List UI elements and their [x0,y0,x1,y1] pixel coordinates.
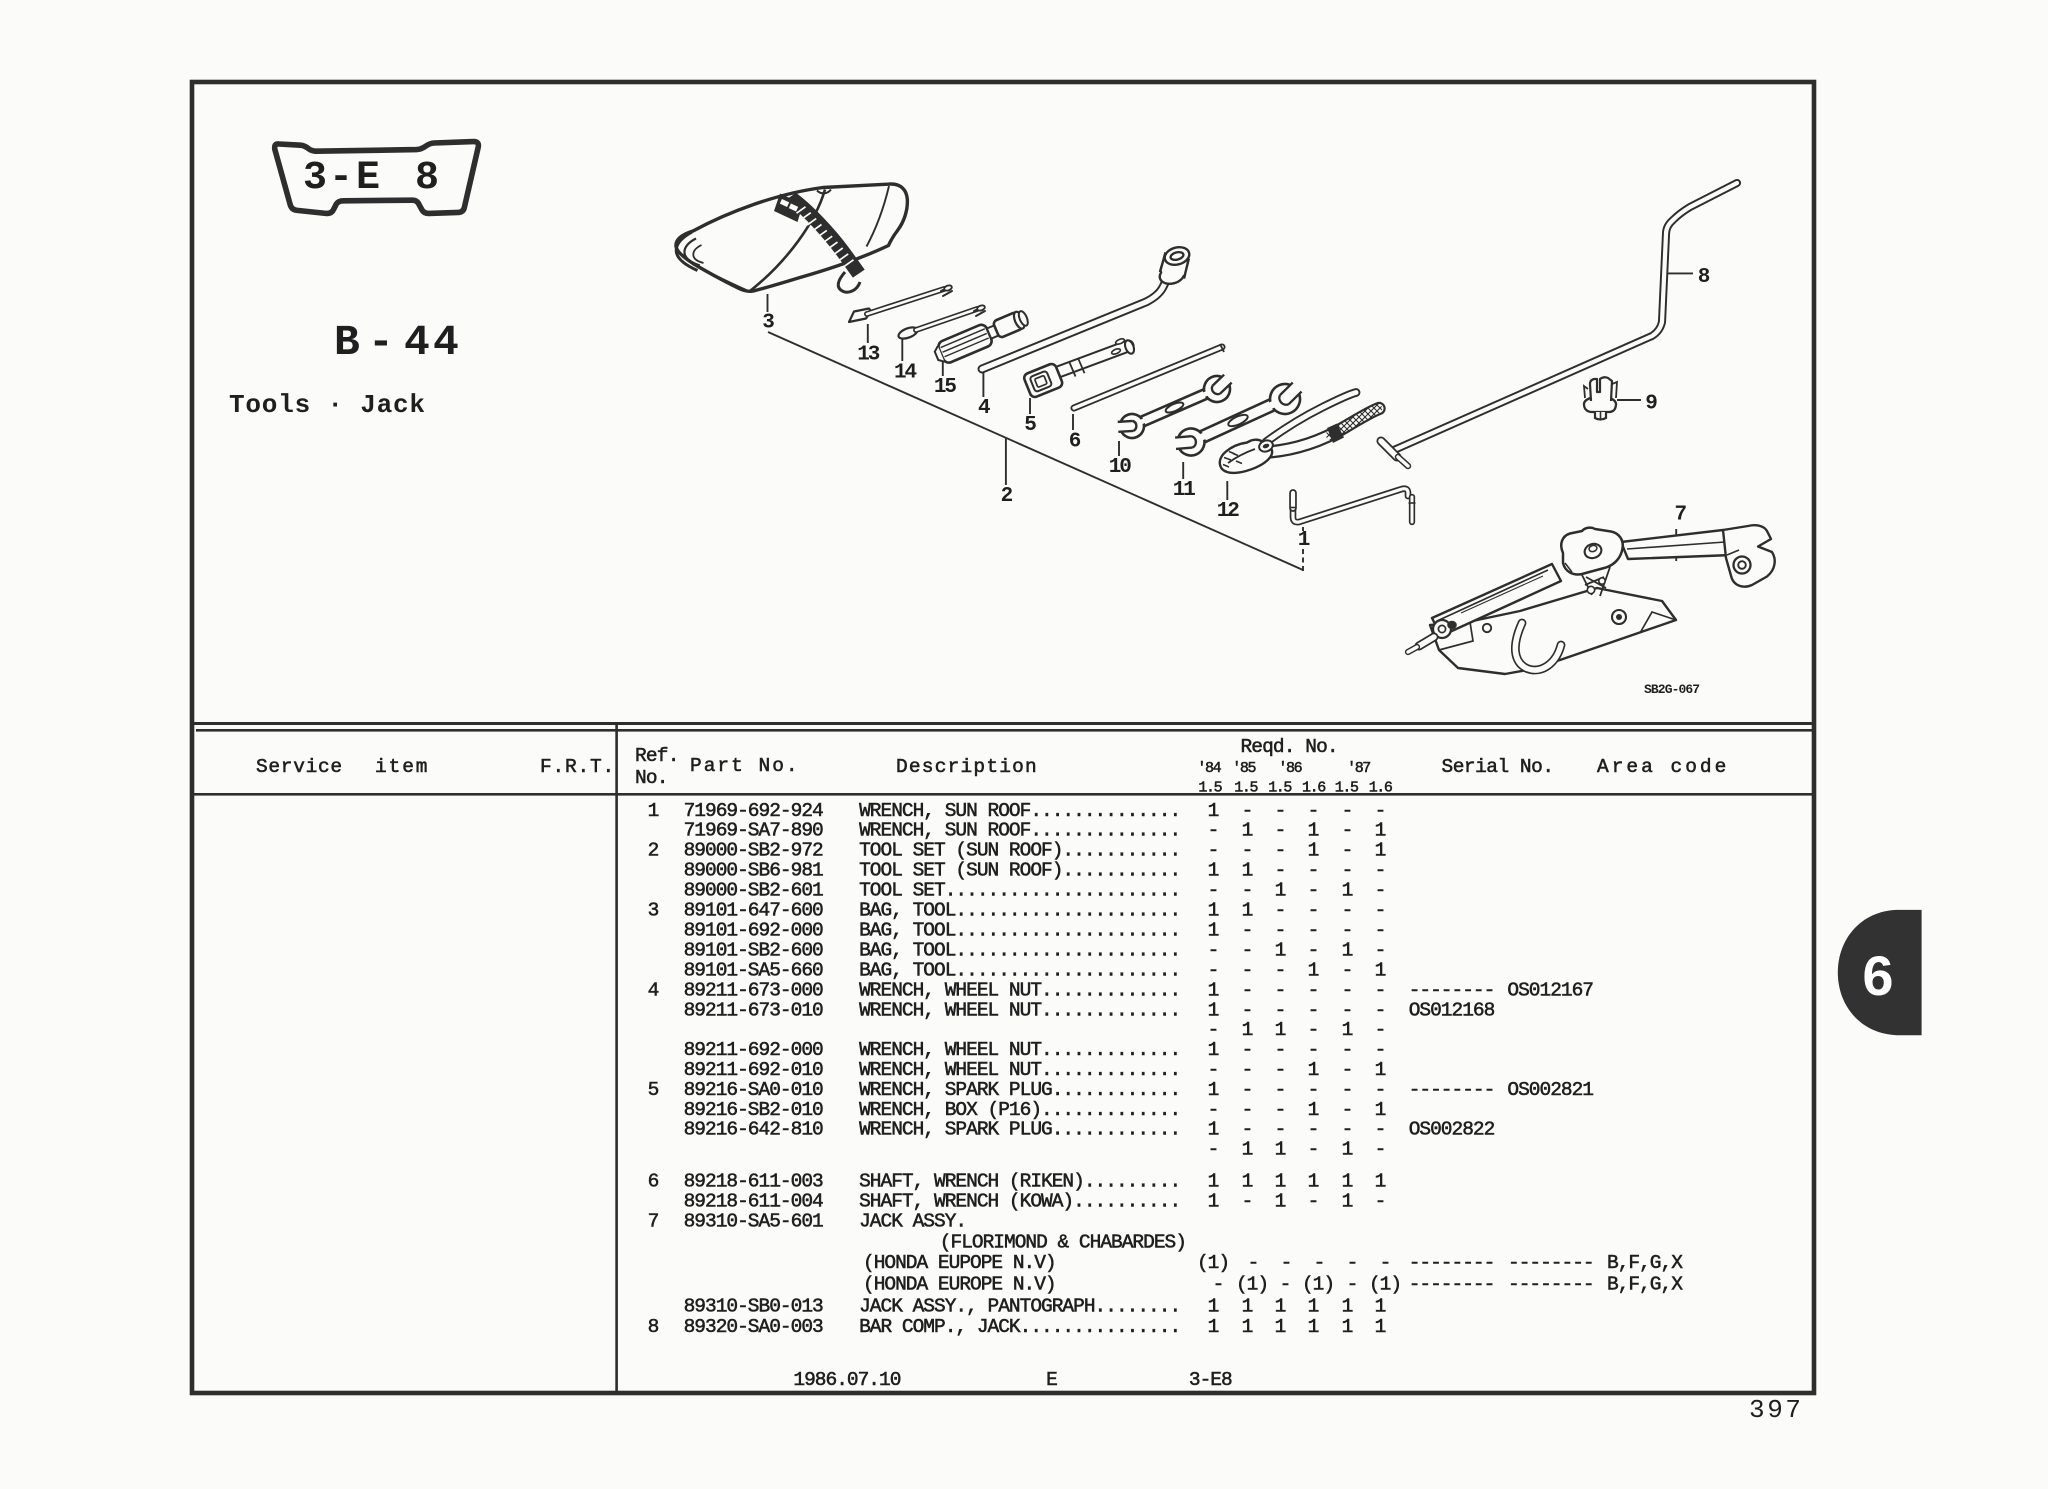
svg-text:(1): (1) [1236,1274,1268,1296]
svg-text:1: 1 [648,800,659,822]
svg-text:B,F,G,X: B,F,G,X [1607,1274,1683,1296]
svg-text:8: 8 [1698,266,1710,289]
svg-text:3: 3 [648,900,659,922]
svg-text:(HONDA EUROPE N.V): (HONDA EUROPE N.V) [863,1274,1056,1296]
svg-text:1.5: 1.5 [1198,780,1222,797]
svg-text:10: 10 [1109,456,1132,479]
svg-text:6: 6 [1862,944,1893,1007]
svg-text:Tools · Jack: Tools · Jack [229,390,426,420]
svg-text:E: E [1046,1369,1057,1391]
svg-text:--------: -------- [1508,1274,1594,1296]
svg-text:1-1-1-: 1-1-1- [1208,1191,1386,1213]
svg-text:OS002821: OS002821 [1507,1079,1593,1101]
svg-text:Service: Service [256,756,343,778]
svg-text:BAG, TOOL.....................: BAG, TOOL..................... [859,959,1180,981]
svg-text:1-----: 1----- [1208,800,1386,822]
svg-text:BAR COMP., JACK...............: BAR COMP., JACK............... [859,1316,1180,1338]
svg-text:8: 8 [648,1316,659,1338]
svg-text:---1-1: ---1-1 [1208,959,1386,981]
svg-text:1.6: 1.6 [1302,780,1326,797]
svg-text:-: - [1213,1274,1224,1296]
svg-text:'86: '86 [1278,760,1302,777]
svg-text:1-----: 1----- [1208,920,1386,942]
svg-text:89211-692-010: 89211-692-010 [684,1059,823,1081]
svg-text:397: 397 [1749,1395,1804,1425]
svg-text:Serial No.: Serial No. [1442,756,1554,778]
svg-text:--------: -------- [1409,979,1495,1001]
svg-text:B,F,G,X: B,F,G,X [1607,1252,1683,1274]
svg-text:7: 7 [1675,504,1687,527]
svg-text:Area code: Area code [1597,756,1729,778]
svg-text:WRENCH, SPARK PLUG............: WRENCH, SPARK PLUG............ [859,1119,1180,1141]
svg-text:6: 6 [648,1171,659,1193]
svg-text:89101-SA5-660: 89101-SA5-660 [684,959,823,981]
svg-text:89310-SA5-601: 89310-SA5-601 [684,1211,823,1233]
svg-text:item: item [375,756,429,778]
svg-text:OS002822: OS002822 [1409,1119,1495,1141]
svg-text:89320-SA0-003: 89320-SA0-003 [684,1316,823,1338]
svg-text:Part No.: Part No. [690,755,800,777]
svg-text:OS012168: OS012168 [1409,999,1495,1021]
svg-text:-----: ----- [1248,1252,1391,1274]
svg-text:89101-692-000: 89101-692-000 [684,920,823,942]
svg-text:-: - [1280,1274,1291,1296]
svg-text:SHAFT, WRENCH (RIKEN).........: SHAFT, WRENCH (RIKEN)......... [859,1171,1180,1193]
svg-text:WRENCH, SUN ROOF..............: WRENCH, SUN ROOF.............. [859,820,1180,842]
svg-text:BAG, TOOL.....................: BAG, TOOL..................... [859,939,1180,961]
svg-text:89000-SB2-601: 89000-SB2-601 [684,880,823,902]
svg-text:89310-SB0-013: 89310-SB0-013 [684,1295,823,1317]
svg-text:89211-673-010: 89211-673-010 [684,999,823,1021]
svg-text:---1-1: ---1-1 [1208,1059,1386,1081]
svg-text:(HONDA EUPOPE N.V): (HONDA EUPOPE N.V) [863,1252,1056,1274]
svg-text:JACK ASSY.: JACK ASSY. [859,1211,966,1233]
svg-text:--------: -------- [1508,1252,1594,1274]
svg-text:TOOL SET (SUN ROOF)...........: TOOL SET (SUN ROOF)........... [859,840,1180,862]
svg-text:71969-SA7-890: 71969-SA7-890 [684,820,823,842]
svg-text:--------: -------- [1409,1274,1495,1296]
svg-text:---1-1: ---1-1 [1208,840,1386,862]
svg-text:-: - [1347,1274,1358,1296]
svg-text:89000-SB2-972: 89000-SB2-972 [684,840,823,862]
svg-text:WRENCH, WHEEL NUT.............: WRENCH, WHEEL NUT............. [859,1039,1180,1061]
svg-text:11----: 11---- [1208,900,1386,922]
svg-text:3-E8: 3-E8 [303,156,439,201]
svg-text:89216-SA0-010: 89216-SA0-010 [684,1079,823,1101]
svg-text:--1-1-: --1-1- [1208,880,1386,902]
svg-text:No.: No. [635,767,668,789]
svg-text:WRENCH, WHEEL NUT.............: WRENCH, WHEEL NUT............. [859,979,1180,1001]
svg-text:7: 7 [648,1211,659,1233]
svg-text:TOOL SET (SUN ROOF)...........: TOOL SET (SUN ROOF)........... [859,860,1180,882]
svg-text:9: 9 [1645,393,1657,416]
svg-text:BAG, TOOL.....................: BAG, TOOL..................... [859,900,1180,922]
svg-text:89218-611-003: 89218-611-003 [684,1171,823,1193]
svg-text:1-----: 1----- [1208,979,1386,1001]
svg-text:SB2G-067: SB2G-067 [1644,682,1699,697]
svg-text:'84: '84 [1197,760,1221,777]
svg-text:14: 14 [894,361,917,384]
svg-text:OS012167: OS012167 [1507,979,1593,1001]
svg-text:1.5: 1.5 [1335,780,1359,797]
svg-text:1986.07.10: 1986.07.10 [793,1369,900,1391]
svg-text:F.R.T.: F.R.T. [540,756,615,778]
svg-text:12: 12 [1217,500,1240,523]
svg-text:1-----: 1----- [1208,999,1386,1021]
svg-text:'87: '87 [1347,760,1370,777]
svg-text:-11-1-: -11-1- [1208,1139,1386,1161]
svg-text:WRENCH, WHEEL NUT.............: WRENCH, WHEEL NUT............. [859,1059,1180,1081]
svg-text:-1-1-1: -1-1-1 [1208,820,1386,842]
svg-text:1-----: 1----- [1208,1079,1386,1101]
svg-text:1.5: 1.5 [1268,780,1292,797]
svg-text:TOOL SET......................: TOOL SET...................... [859,880,1180,902]
svg-text:Ref.: Ref. [635,745,679,767]
svg-text:1-----: 1----- [1208,1039,1386,1061]
svg-text:1.6: 1.6 [1369,780,1393,797]
svg-text:6: 6 [1069,431,1081,454]
svg-text:--1-1-: --1-1- [1208,939,1386,961]
svg-text:15: 15 [934,376,957,399]
svg-text:89218-611-004: 89218-611-004 [684,1191,823,1213]
svg-text:B-44: B-44 [334,318,459,367]
svg-text:1.5: 1.5 [1234,780,1258,797]
svg-text:5: 5 [648,1079,659,1101]
svg-text:WRENCH, SPARK PLUG............: WRENCH, SPARK PLUG............ [859,1079,1180,1101]
svg-text:89000-SB6-981: 89000-SB6-981 [684,860,823,882]
svg-text:89216-642-810: 89216-642-810 [684,1119,823,1141]
svg-text:(1): (1) [1369,1274,1401,1296]
svg-text:71969-692-924: 71969-692-924 [684,800,823,822]
svg-text:Reqd. No.: Reqd. No. [1241,736,1338,758]
svg-text:5: 5 [1024,414,1036,437]
svg-text:JACK ASSY., PANTOGRAPH........: JACK ASSY., PANTOGRAPH........ [859,1295,1180,1317]
svg-text:(FLORIMOND & CHABARDES): (FLORIMOND & CHABARDES) [940,1232,1186,1254]
svg-text:4: 4 [648,979,659,1001]
svg-text:11----: 11---- [1208,860,1386,882]
svg-text:2: 2 [1001,485,1013,508]
svg-text:89101-647-600: 89101-647-600 [684,900,823,922]
svg-text:'85: '85 [1232,760,1256,777]
svg-text:SHAFT, WRENCH (KOWA)..........: SHAFT, WRENCH (KOWA).......... [859,1191,1180,1213]
svg-text:89101-SB2-600: 89101-SB2-600 [684,939,823,961]
svg-text:111111: 111111 [1208,1171,1386,1193]
svg-text:11: 11 [1173,479,1196,502]
svg-text:1: 1 [1298,529,1310,552]
svg-text:---1-1: ---1-1 [1208,1099,1386,1121]
svg-text:4: 4 [978,397,990,420]
svg-text:111111: 111111 [1208,1295,1386,1317]
svg-text:1-----: 1----- [1208,1119,1386,1141]
svg-text:(1): (1) [1197,1252,1229,1274]
svg-text:89211-673-000: 89211-673-000 [684,979,823,1001]
svg-text:Description: Description [896,756,1038,778]
svg-text:WRENCH, WHEEL NUT.............: WRENCH, WHEEL NUT............. [859,999,1180,1021]
svg-text:(1): (1) [1302,1274,1334,1296]
svg-text:3: 3 [762,312,774,335]
svg-text:2: 2 [648,840,659,862]
svg-text:13: 13 [857,343,880,366]
svg-text:WRENCH, SUN ROOF..............: WRENCH, SUN ROOF.............. [859,800,1180,822]
svg-text:--------: -------- [1409,1079,1495,1101]
svg-text:--------: -------- [1409,1252,1495,1274]
svg-text:111111: 111111 [1208,1316,1386,1338]
svg-text:89211-692-000: 89211-692-000 [684,1039,823,1061]
svg-text:-11-1-: -11-1- [1208,1019,1386,1041]
svg-text:BAG, TOOL.....................: BAG, TOOL..................... [859,920,1180,942]
svg-text:3-E8: 3-E8 [1189,1369,1232,1391]
